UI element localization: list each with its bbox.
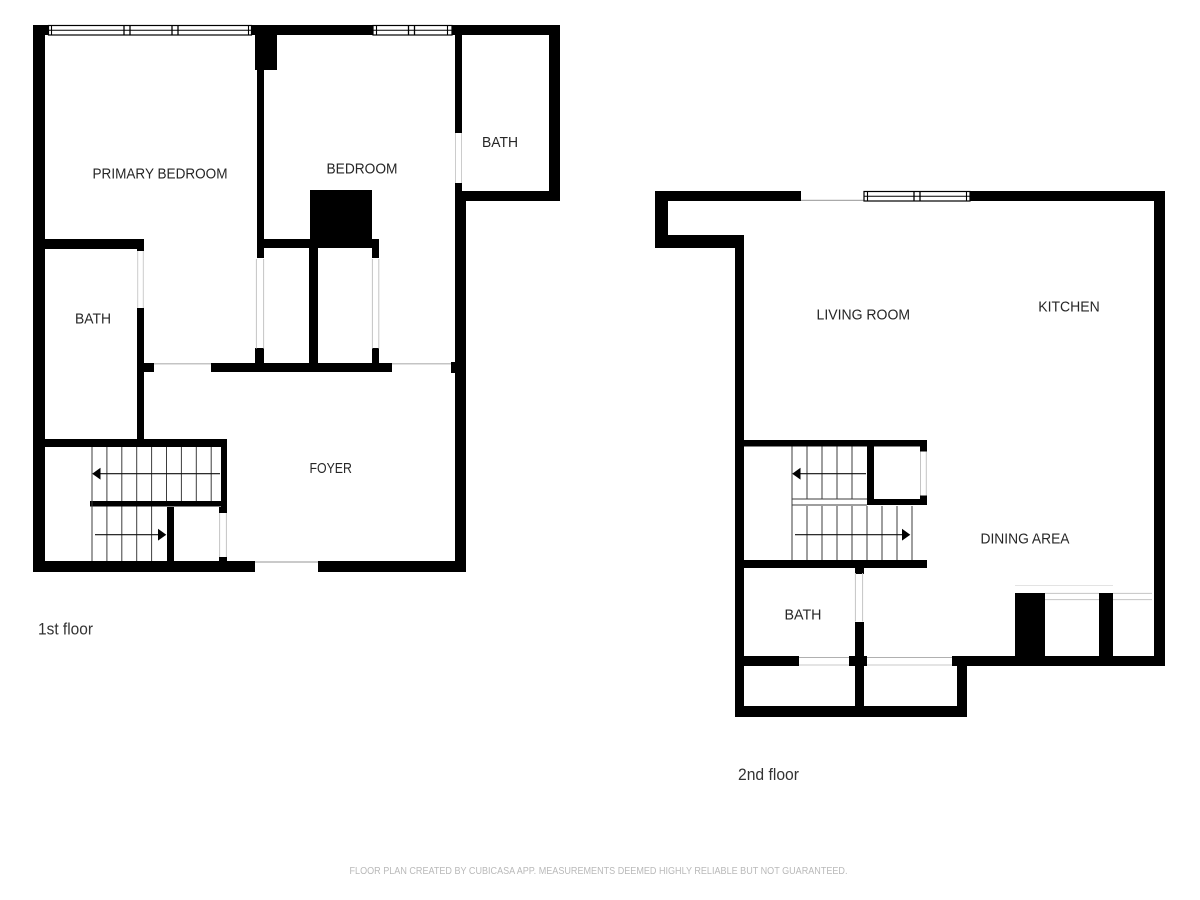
svg-text:LIVING ROOM: LIVING ROOM [817, 307, 911, 324]
svg-text:1st floor: 1st floor [38, 620, 93, 639]
svg-text:BATH: BATH [482, 134, 518, 151]
svg-text:FLOOR PLAN CREATED BY CUBICASA: FLOOR PLAN CREATED BY CUBICASA APP. MEAS… [350, 866, 848, 877]
svg-text:BATH: BATH [75, 311, 111, 328]
svg-text:2nd floor: 2nd floor [738, 765, 799, 784]
svg-text:PRIMARY BEDROOM: PRIMARY BEDROOM [93, 166, 228, 183]
svg-text:BEDROOM: BEDROOM [327, 161, 398, 178]
svg-text:KITCHEN: KITCHEN [1038, 299, 1100, 316]
svg-text:DINING AREA: DINING AREA [981, 531, 1070, 548]
svg-text:BATH: BATH [785, 607, 822, 624]
svg-text:FOYER: FOYER [309, 460, 352, 477]
